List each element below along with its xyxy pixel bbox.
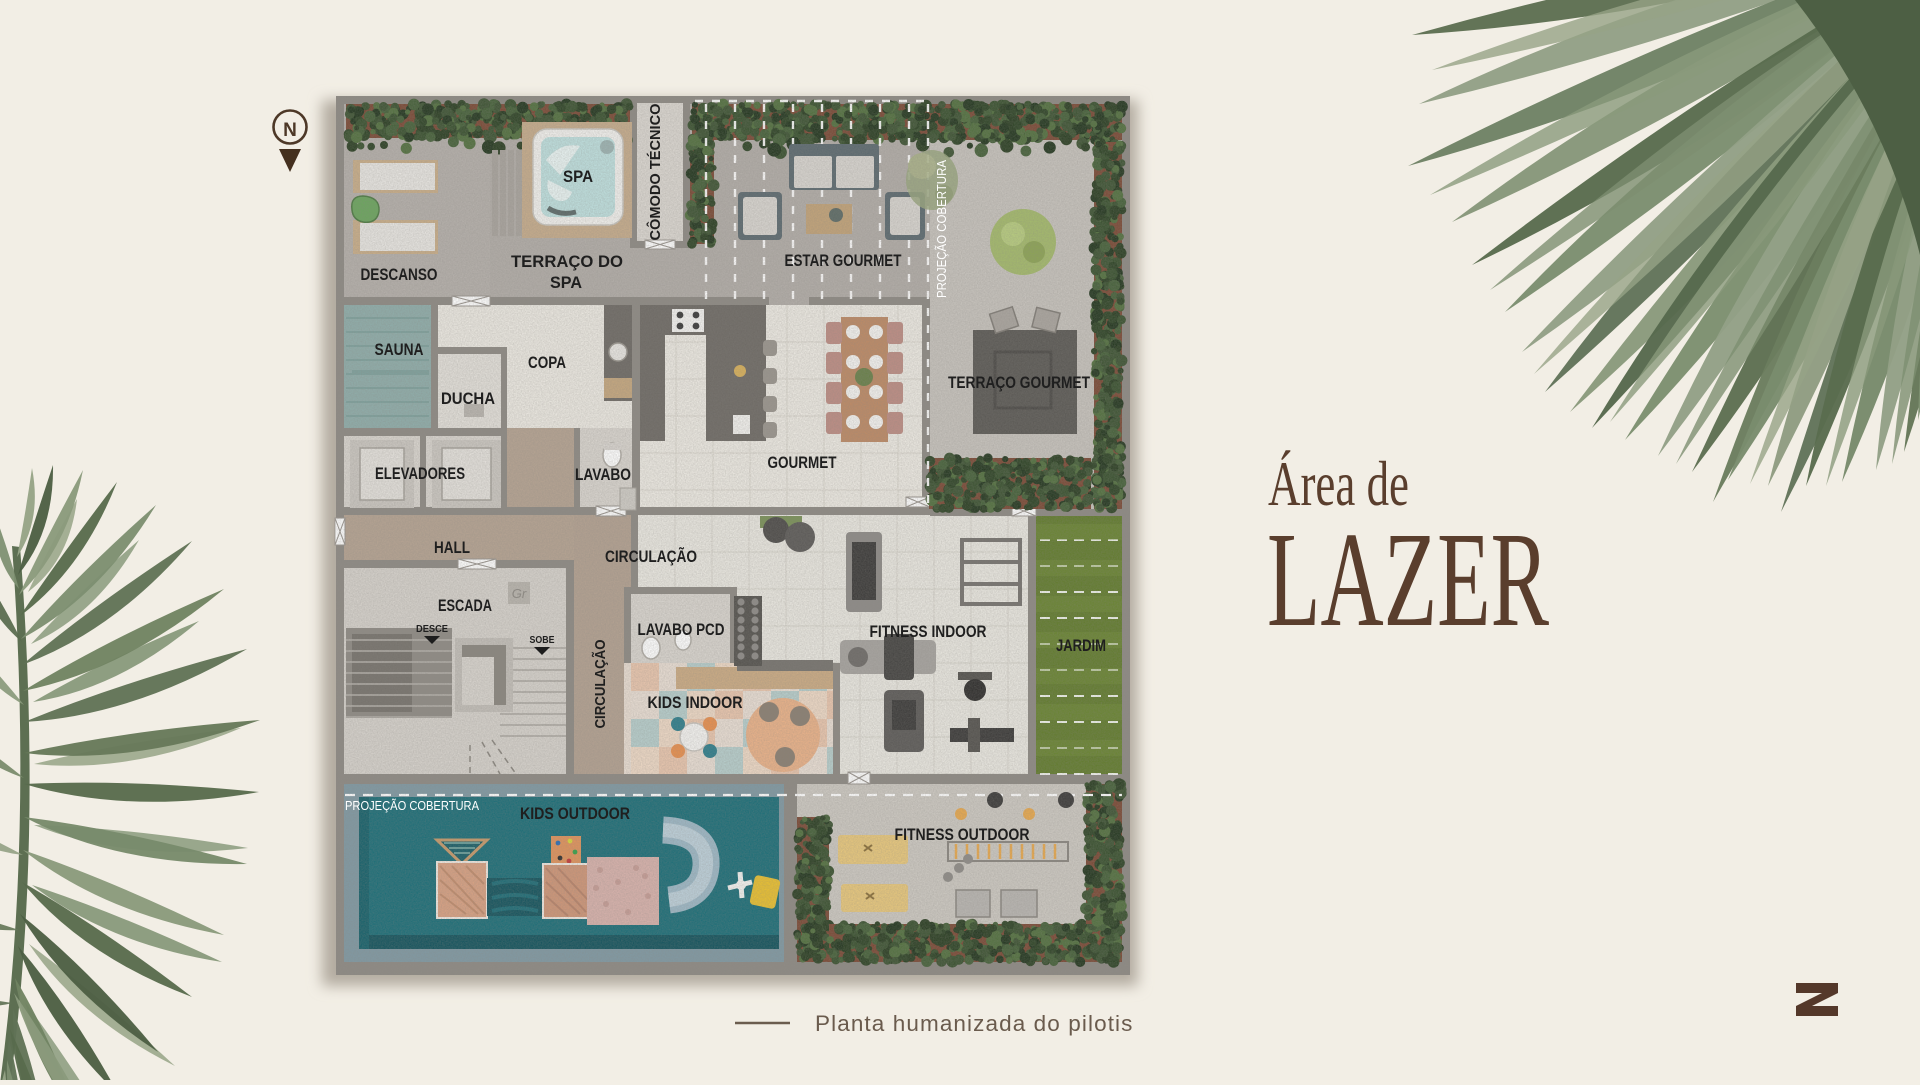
svg-text:COPA: COPA <box>528 354 566 372</box>
svg-text:DESCE: DESCE <box>416 624 448 635</box>
svg-text:Planta humanizada do pilotis: Planta humanizada do pilotis <box>815 1011 1134 1036</box>
svg-text:HALL: HALL <box>434 539 470 557</box>
svg-text:ELEVADORES: ELEVADORES <box>375 465 465 483</box>
svg-text:SPA: SPA <box>550 274 582 292</box>
svg-text:LAZER: LAZER <box>1267 505 1549 655</box>
svg-text:ESTAR GOURMET: ESTAR GOURMET <box>785 252 902 270</box>
svg-text:CIRCULAÇÃO: CIRCULAÇÃO <box>591 639 609 728</box>
svg-text:N: N <box>283 120 297 141</box>
svg-text:LAVABO: LAVABO <box>575 466 631 484</box>
svg-text:JARDIM: JARDIM <box>1056 637 1106 655</box>
svg-text:DESCANSO: DESCANSO <box>361 266 438 284</box>
svg-text:ESCADA: ESCADA <box>438 597 492 615</box>
svg-text:CÔMODO TÉCNICO: CÔMODO TÉCNICO <box>646 103 664 240</box>
svg-text:SOBE: SOBE <box>530 635 555 646</box>
svg-text:PROJEÇÃO COBERTURA: PROJEÇÃO COBERTURA <box>935 159 949 298</box>
svg-text:GOURMET: GOURMET <box>768 454 837 472</box>
svg-text:DUCHA: DUCHA <box>441 390 495 408</box>
svg-text:LAVABO PCD: LAVABO PCD <box>638 621 725 639</box>
svg-text:FITNESS OUTDOOR: FITNESS OUTDOOR <box>895 826 1030 844</box>
svg-text:FITNESS INDOOR: FITNESS INDOOR <box>870 623 987 641</box>
svg-text:KIDS INDOOR: KIDS INDOOR <box>648 694 743 712</box>
svg-text:TERRAÇO DO: TERRAÇO DO <box>511 253 623 271</box>
svg-text:TERRAÇO GOURMET: TERRAÇO GOURMET <box>948 374 1090 392</box>
svg-text:KIDS OUTDOOR: KIDS OUTDOOR <box>520 805 630 823</box>
svg-text:SAUNA: SAUNA <box>375 341 424 359</box>
svg-text:CIRCULAÇÃO: CIRCULAÇÃO <box>605 546 697 566</box>
svg-text:SPA: SPA <box>563 168 593 186</box>
svg-text:PROJEÇÃO COBERTURA: PROJEÇÃO COBERTURA <box>345 798 479 813</box>
